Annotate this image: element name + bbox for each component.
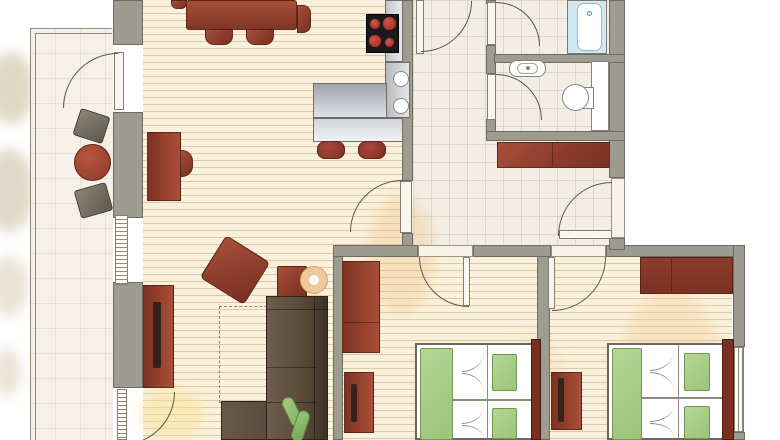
shrub [0, 256, 28, 316]
sink-basin [393, 71, 409, 87]
kitchen-breakfast-bar [313, 118, 403, 142]
headboard [722, 339, 734, 440]
bed-foot-blanket [612, 348, 642, 440]
bedroom2-window [734, 347, 744, 432]
wardrobe-divider [343, 322, 379, 323]
dining-chair [205, 29, 233, 45]
living-window [115, 215, 128, 285]
desk [147, 132, 181, 201]
entry-door-threshold [611, 178, 625, 238]
pillow [684, 406, 710, 439]
wardrobe-divider [671, 258, 672, 293]
bed-pillow-line [487, 345, 488, 439]
shrub [0, 148, 34, 232]
bed-foot-blanket [420, 348, 453, 440]
bathroom-door [487, 2, 496, 45]
sofa-backrest-line [314, 297, 315, 439]
toilet-bowl [562, 84, 589, 111]
bed-pillow-line [678, 345, 679, 439]
burner [369, 35, 381, 47]
wall-bedroom-right-east [733, 245, 745, 347]
wall-west [113, 0, 143, 45]
wc-door [487, 74, 496, 120]
wall-east-entry [609, 238, 625, 250]
pillow [684, 353, 710, 391]
dining-table [186, 0, 297, 30]
decor-bowl-hole [309, 275, 319, 285]
pillow [492, 408, 517, 439]
dining-chair [171, 0, 187, 9]
tv-screen [153, 302, 161, 368]
bar-stool [317, 141, 345, 159]
bathtub-drain [587, 11, 592, 16]
dining-chair [297, 5, 311, 33]
burner [383, 17, 396, 30]
pillow [492, 354, 517, 391]
wall-corridor [333, 245, 418, 257]
wardrobe-wide [640, 257, 733, 294]
round-bistro-table [74, 144, 111, 181]
bed-center-line [642, 397, 726, 399]
wall-bedroom-right-east [733, 432, 745, 440]
shrub [0, 348, 22, 396]
wall-wc-south [486, 131, 625, 141]
wardrobe-tall [342, 261, 380, 353]
faucet-dot [526, 66, 530, 70]
bar-stool [358, 141, 386, 159]
burner [370, 19, 380, 29]
wall-east-entry [609, 0, 625, 178]
burner [385, 38, 394, 47]
sofa-cushion-line [267, 367, 317, 368]
wall-west [113, 282, 143, 388]
shrub [0, 52, 34, 124]
sofa-armrest-line [267, 309, 327, 310]
floor-plan [0, 0, 780, 440]
dresser [344, 372, 374, 433]
sink-basin [393, 98, 409, 114]
wall-corridor [606, 245, 745, 257]
sideboard-divider [552, 143, 553, 167]
kitchen-counter-L [313, 83, 387, 118]
dresser-handle [351, 384, 357, 422]
dining-chair [246, 29, 274, 45]
bed-center-line [453, 399, 531, 401]
nightstand-handle [558, 378, 564, 422]
hall-sideboard [497, 142, 610, 168]
nightstand [551, 372, 582, 430]
bedroom-mid-door-threshold [418, 245, 473, 257]
wall-west [113, 112, 143, 218]
headboard [531, 339, 541, 440]
bedroom-right-door-threshold [551, 245, 606, 257]
